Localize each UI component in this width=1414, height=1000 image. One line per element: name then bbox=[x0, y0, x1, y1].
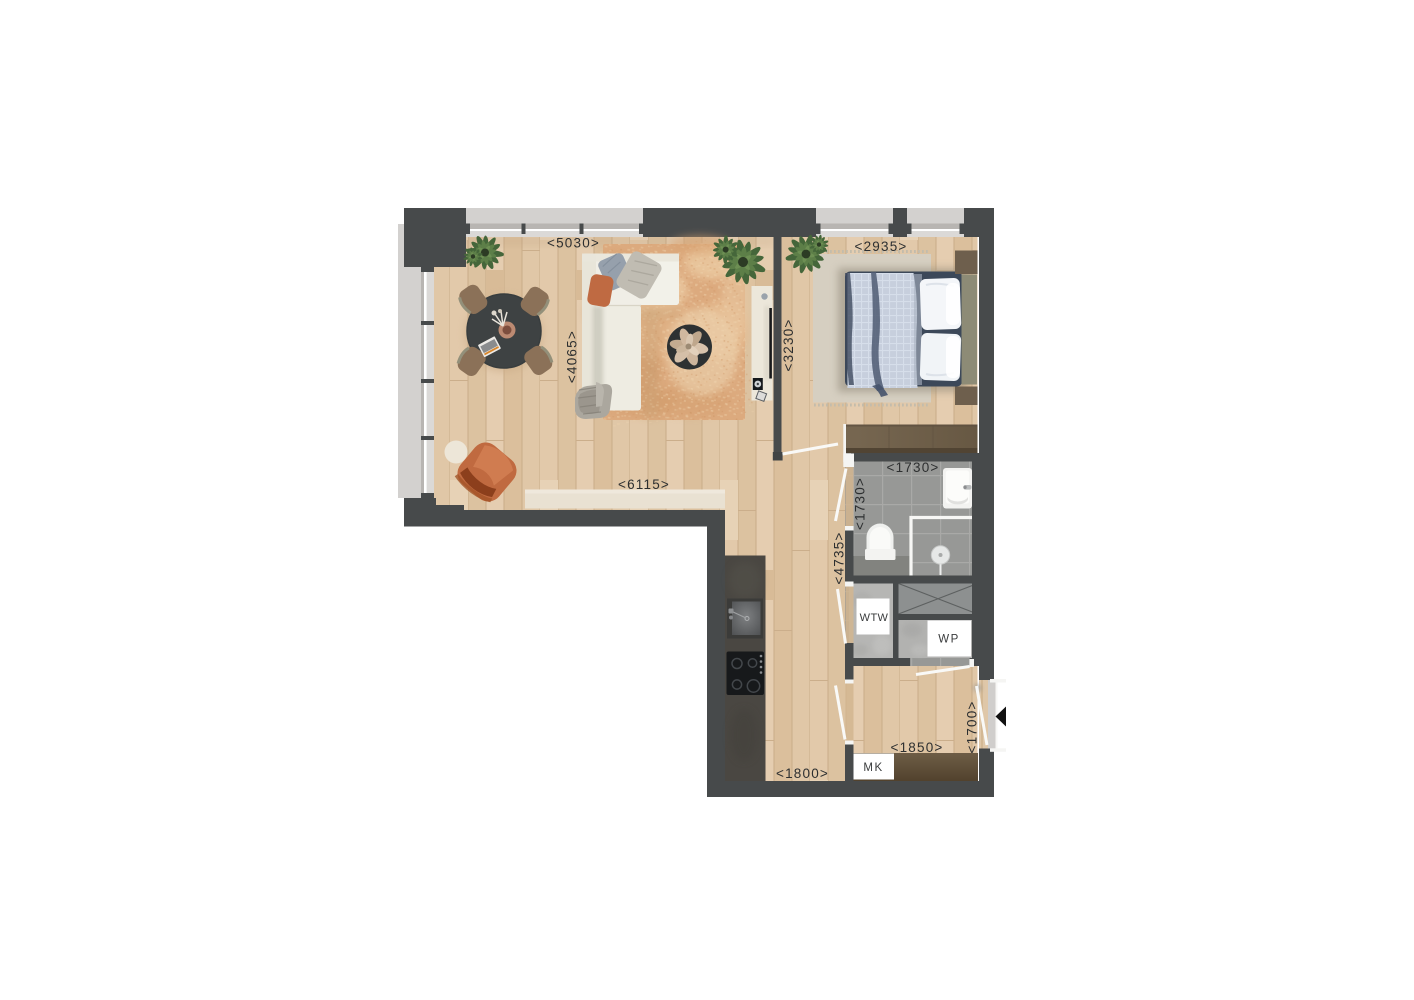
svg-text:<4065>: <4065> bbox=[565, 330, 580, 383]
svg-text:MK: MK bbox=[863, 762, 883, 774]
svg-text:WP: WP bbox=[938, 634, 960, 646]
svg-text:<6115>: <6115> bbox=[618, 477, 670, 492]
svg-text:<1700>: <1700> bbox=[965, 701, 980, 754]
svg-text:<4735>: <4735> bbox=[832, 532, 847, 585]
svg-text:<5030>: <5030> bbox=[547, 236, 600, 251]
svg-text:<1850>: <1850> bbox=[891, 740, 944, 755]
svg-text:<1730>: <1730> bbox=[853, 477, 868, 530]
svg-text:<1730>: <1730> bbox=[887, 460, 940, 475]
svg-text:<2935>: <2935> bbox=[855, 239, 908, 254]
svg-text:<3230>: <3230> bbox=[781, 319, 796, 372]
svg-text:<1800>: <1800> bbox=[776, 766, 829, 781]
svg-text:WTW: WTW bbox=[860, 612, 889, 624]
